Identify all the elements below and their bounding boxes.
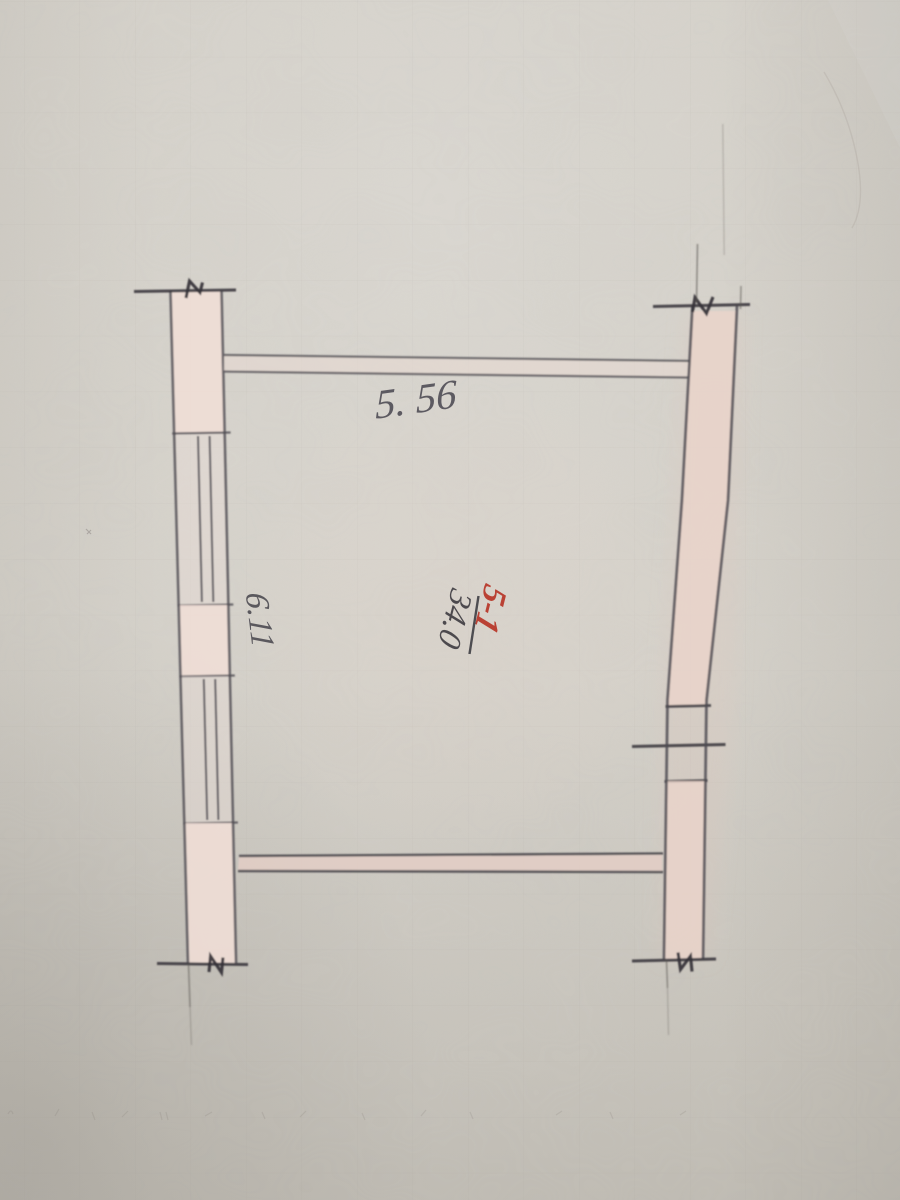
svg-text:6.11: 6.11 [238, 592, 282, 648]
